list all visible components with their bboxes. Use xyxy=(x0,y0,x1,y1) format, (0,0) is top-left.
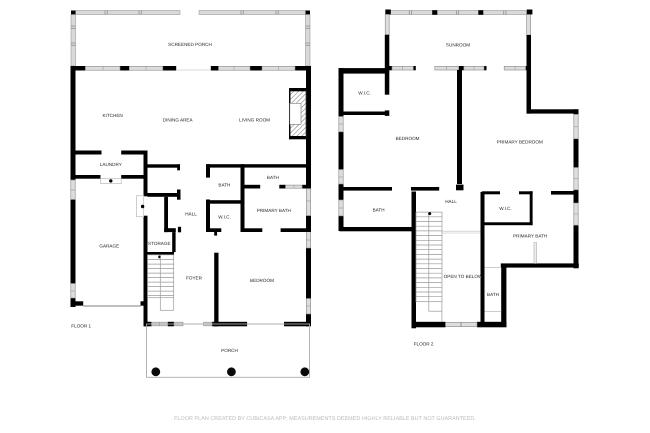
svg-text:GARAGE: GARAGE xyxy=(99,244,119,249)
svg-text:OPEN TO BELOW: OPEN TO BELOW xyxy=(444,274,483,279)
svg-text:DINING AREA: DINING AREA xyxy=(163,118,194,123)
svg-text:FLOOR 2: FLOOR 2 xyxy=(414,342,434,347)
svg-text:W.I.C.: W.I.C. xyxy=(499,206,512,211)
svg-text:BATH: BATH xyxy=(218,182,230,187)
svg-text:BATH: BATH xyxy=(487,292,499,297)
svg-text:HALL: HALL xyxy=(185,212,197,217)
svg-text:BATH: BATH xyxy=(373,207,385,212)
svg-text:KITCHEN: KITCHEN xyxy=(102,113,122,118)
svg-text:FLOOR 1: FLOOR 1 xyxy=(71,323,91,328)
svg-text:FOYER: FOYER xyxy=(186,275,203,280)
svg-text:LAUNDRY: LAUNDRY xyxy=(100,162,122,167)
svg-text:BEDROOM: BEDROOM xyxy=(396,136,420,141)
svg-text:BATH: BATH xyxy=(267,175,279,180)
svg-text:HALL: HALL xyxy=(445,199,457,204)
svg-text:STORAGE: STORAGE xyxy=(148,241,171,246)
svg-text:LIVING ROOM: LIVING ROOM xyxy=(239,118,270,123)
svg-text:BEDROOM: BEDROOM xyxy=(250,278,274,283)
svg-text:SCREENED PORCH: SCREENED PORCH xyxy=(168,42,212,47)
svg-text:W.I.C.: W.I.C. xyxy=(218,215,231,220)
svg-text:PRIMARY BATH: PRIMARY BATH xyxy=(257,208,291,213)
svg-text:W.I.C.: W.I.C. xyxy=(358,91,371,96)
svg-text:PRIMARY BEDROOM: PRIMARY BEDROOM xyxy=(497,139,543,144)
svg-text:PRIMARY BATH: PRIMARY BATH xyxy=(513,234,547,239)
svg-text:SUNROOM: SUNROOM xyxy=(446,42,470,47)
svg-text:PORCH: PORCH xyxy=(221,348,238,353)
svg-text:FLOOR PLAN CREATED BY CUBICASA: FLOOR PLAN CREATED BY CUBICASA APP; MEAS… xyxy=(174,416,476,422)
